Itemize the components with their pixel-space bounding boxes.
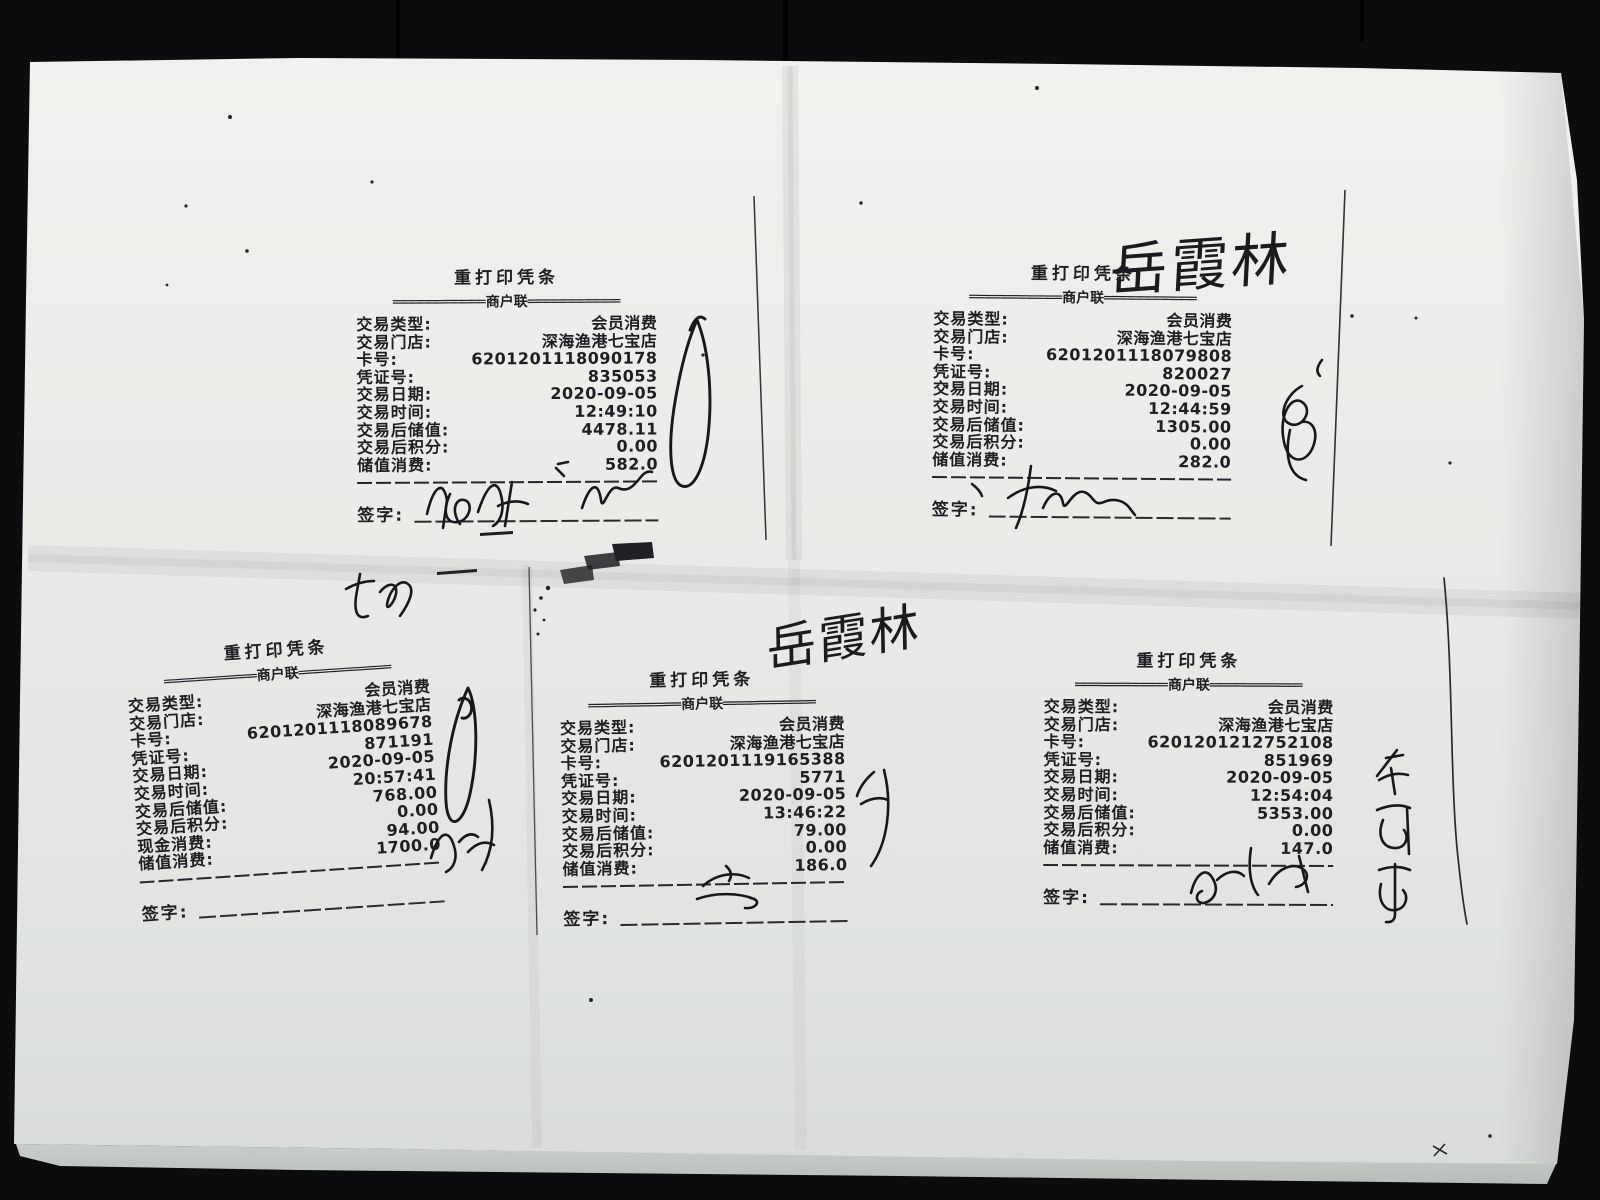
- row-value: 会员消费: [1268, 699, 1334, 717]
- row-value: 0.00: [1190, 435, 1232, 453]
- row-label: 交易后储值:: [357, 421, 449, 439]
- row-label: 卡号:: [933, 345, 975, 363]
- receipt-row: 卡号:6201201212752108: [1044, 733, 1334, 752]
- receipt-rows: 交易类型:会员消费交易门店:深海渔港七宝店卡号:6201201118090178…: [356, 314, 658, 474]
- signature-row: 签字:: [357, 500, 658, 527]
- receipt-row: 储值消费:147.0: [1043, 839, 1333, 858]
- row-value: 会员消费: [1166, 312, 1232, 330]
- signature-label: 签字:: [932, 495, 979, 520]
- receipt-row: 交易后储值:4478.11: [357, 420, 658, 439]
- row-value: 6201201118090178: [471, 350, 657, 369]
- row-value: 13:46:22: [763, 803, 847, 822]
- signature-label: 签字:: [1043, 883, 1090, 908]
- receipt-separator-line: [1043, 864, 1333, 867]
- row-label: 交易后积分:: [1043, 821, 1135, 839]
- row-label: 交易日期:: [357, 386, 432, 404]
- receipt-voucher-1: 重打印凭条 ═══════════商户联═══════════ 交易类型:会员消…: [356, 262, 658, 526]
- signature-row: 签字:: [563, 900, 848, 930]
- row-label: 交易类型:: [356, 316, 431, 334]
- row-value: 2020-09-05: [1226, 769, 1333, 787]
- receipt-rows: 交易类型:会员消费交易门店:深海渔港七宝店卡号:6201201118079808…: [932, 310, 1232, 471]
- row-label: 交易后积分:: [932, 433, 1025, 451]
- row-value: 282.0: [1178, 453, 1231, 471]
- row-value: 147.0: [1280, 840, 1333, 858]
- receipt-separator-line: [563, 881, 848, 888]
- photographed-document: 重打印凭条 ═══════════商户联═══════════ 交易类型:会员消…: [0, 0, 1600, 1200]
- receipt-row: 交易时间:12:54:04: [1043, 786, 1333, 805]
- row-label: 交易门店:: [1044, 716, 1119, 734]
- signature-line: [1100, 904, 1333, 907]
- row-value: 深海渔港七宝店: [542, 332, 658, 350]
- row-label: 交易时间:: [1043, 786, 1118, 804]
- row-value: 851969: [1264, 752, 1334, 770]
- row-label: 卡号:: [356, 351, 397, 369]
- merchant-copy-divider: ═══════════商户联═══════════: [356, 290, 657, 312]
- row-value: 6201201118079808: [1046, 346, 1232, 365]
- row-value: 12:54:04: [1250, 787, 1334, 805]
- receipt-separator-line: [932, 476, 1231, 481]
- row-value: 835053: [588, 367, 658, 385]
- row-label: 交易后积分:: [562, 842, 655, 861]
- row-label: 交易后储值:: [1043, 804, 1135, 822]
- row-value: 2020-09-05: [1124, 382, 1231, 401]
- row-value: 0.00: [806, 838, 848, 856]
- merchant-copy-divider: ═══════════商户联═══════════: [559, 691, 844, 716]
- row-label: 储值消费:: [932, 451, 1008, 469]
- row-value: 582.0: [605, 455, 658, 473]
- row-value: 12:49:10: [574, 402, 658, 420]
- row-label: 交易时间:: [561, 807, 637, 826]
- row-value: 0.00: [616, 438, 658, 456]
- row-label: 储值消费:: [357, 456, 432, 474]
- row-value: 1305.00: [1155, 417, 1232, 435]
- signature-line: [620, 920, 848, 926]
- row-label: 交易门店:: [356, 333, 431, 351]
- paper-sheet-layer: [0, 0, 1600, 1200]
- handwritten-name-annotation: 岳霞林: [1108, 211, 1295, 308]
- row-value: 5353.00: [1257, 804, 1333, 822]
- merchant-copy-divider: ═══════════商户联═══════════: [1044, 674, 1334, 695]
- receipt-row: 储值消费:186.0: [562, 856, 847, 879]
- row-value: 会员消费: [591, 314, 657, 332]
- receipt-row: 交易后积分:0.00: [1043, 821, 1333, 840]
- receipt-rows: 交易类型:会员消费交易门店:深海渔港七宝店卡号:6201201118089678…: [127, 678, 441, 874]
- receipt-title: 重打印凭条: [356, 262, 657, 289]
- row-label: 卡号:: [561, 754, 603, 772]
- signature-label: 签字:: [563, 904, 610, 930]
- receipt-row: 交易门店:深海渔港七宝店: [1044, 716, 1334, 735]
- row-label: 交易后积分:: [357, 439, 449, 457]
- row-label: 凭证号:: [933, 363, 992, 381]
- receipt-row: 储值消费:282.0: [932, 451, 1231, 471]
- row-label: 凭证号:: [357, 368, 415, 386]
- row-label: 交易后储值:: [932, 416, 1025, 434]
- row-value: 1700.0: [376, 836, 442, 858]
- row-value: 6201201212752108: [1148, 734, 1334, 752]
- receipt-voucher-5: 重打印凭条 ═══════════商户联═══════════ 交易类型:会员消…: [1043, 646, 1334, 909]
- row-label: 卡号:: [1044, 733, 1085, 751]
- row-label: 储值消费:: [138, 851, 214, 874]
- row-label: 储值消费:: [562, 859, 638, 878]
- row-value: 12:44:59: [1148, 400, 1232, 418]
- row-label: 交易类型:: [1044, 698, 1119, 716]
- signature-row: 签字:: [932, 495, 1231, 523]
- receipt-voucher-3: 重打印凭条 ═══════════商户联═══════════ 交易类型:会员消…: [124, 626, 445, 925]
- row-value: 5771: [799, 768, 846, 786]
- row-value: 会员消费: [779, 715, 845, 734]
- receipt-row: 储值消费:582.0: [357, 455, 658, 474]
- signature-line: [989, 516, 1231, 520]
- row-label: 储值消费:: [1043, 839, 1118, 857]
- row-label: 交易门店:: [560, 736, 636, 755]
- row-label: 交易门店:: [933, 328, 1009, 346]
- row-label: 交易类型:: [933, 310, 1009, 328]
- row-label: 凭证号:: [1044, 751, 1102, 769]
- signature-label: 签字:: [357, 501, 404, 526]
- receipt-separator-line: [357, 481, 658, 485]
- receipt-rows: 交易类型:会员消费交易门店:深海渔港七宝店卡号:6201201119165388…: [560, 715, 848, 878]
- receipt-rows: 交易类型:会员消费交易门店:深海渔港七宝店卡号:6201201212752108…: [1043, 698, 1334, 857]
- row-value: 186.0: [794, 856, 847, 875]
- row-label: 交易日期:: [1044, 768, 1119, 786]
- row-label: 交易类型:: [560, 719, 636, 738]
- signature-line: [414, 520, 658, 523]
- receipt-title: 重打印凭条: [1044, 646, 1334, 672]
- row-value: 2020-09-05: [550, 385, 657, 403]
- receipt-row: 交易类型:会员消费: [1044, 698, 1334, 717]
- row-value: 820027: [1162, 365, 1232, 383]
- receipt-voucher-4: 重打印凭条 ═══════════商户联═══════════ 交易类型:会员消…: [559, 663, 849, 930]
- row-label: 交易时间:: [357, 404, 432, 422]
- row-label: 交易时间:: [933, 398, 1009, 416]
- signature-label: 签字:: [141, 897, 189, 925]
- row-value: 0.00: [1292, 822, 1334, 840]
- row-label: 交易日期:: [933, 380, 1009, 398]
- signature-row: 签字:: [1043, 883, 1333, 909]
- row-value: 4478.11: [581, 420, 657, 438]
- row-value: 深海渔港七宝店: [1218, 716, 1334, 734]
